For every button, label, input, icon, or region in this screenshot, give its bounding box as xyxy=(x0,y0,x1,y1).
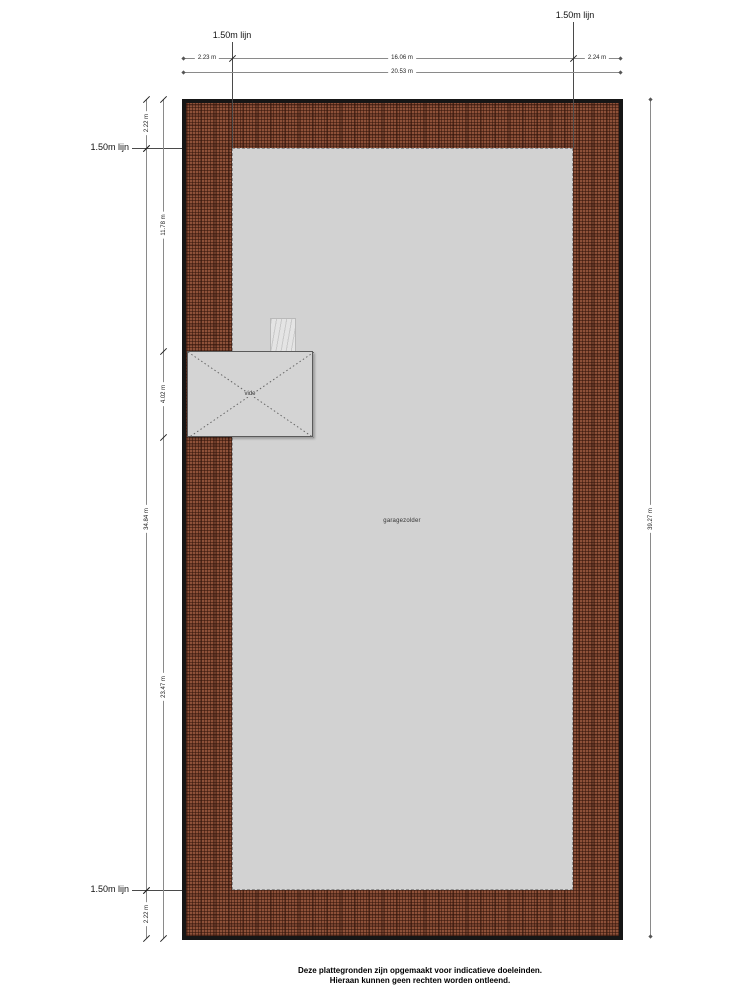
dim-tick xyxy=(160,935,167,942)
dim-left-inner-bottom: 23.47 m xyxy=(160,673,168,701)
dim-end-dot xyxy=(181,70,185,74)
height-line-label-top-right: 1.50m lijn xyxy=(556,10,595,20)
stairs-icon xyxy=(270,318,296,352)
floorplan-canvas: garagezolder vide 1.50m lijn 1.50m lijn … xyxy=(0,0,750,1000)
dim-left-outer-bottom: 2.22 m xyxy=(143,902,151,926)
room-label: garagezolder xyxy=(383,518,420,524)
dim-top-left: 2.23 m xyxy=(195,54,219,62)
dim-top-total: 20.53 m xyxy=(388,68,416,76)
height-line-top-right xyxy=(573,22,574,148)
dim-left-inner-top: 11.78 m xyxy=(160,211,168,238)
disclaimer-line2: Hieraan kunnen geen rechten worden ontle… xyxy=(135,976,705,986)
dim-end-dot xyxy=(648,934,652,938)
dim-end-dot xyxy=(181,56,185,60)
dim-top-middle: 16.06 m xyxy=(388,54,416,62)
disclaimer-text: Deze plattegronden zijn opgemaakt voor i… xyxy=(135,966,705,986)
dim-end-dot xyxy=(618,56,622,60)
height-line-left-upper xyxy=(132,148,182,149)
height-line-label-left-lower: 1.50m lijn xyxy=(85,884,129,894)
vide-void: vide xyxy=(187,351,313,437)
dim-end-dot xyxy=(648,97,652,101)
vide-label: vide xyxy=(243,391,256,397)
dim-end-dot xyxy=(618,70,622,74)
disclaimer-line1: Deze plattegronden zijn opgemaakt voor i… xyxy=(135,966,705,976)
height-line-label-top-left: 1.50m lijn xyxy=(213,30,252,40)
height-line-left-lower xyxy=(132,890,182,891)
dim-tick xyxy=(143,935,150,942)
dim-left-inner-vide: 4.02 m xyxy=(160,382,168,406)
dim-left-outer-top: 2.22 m xyxy=(143,111,151,135)
dim-right-total: 39.27 m xyxy=(647,505,655,533)
dim-top-right: 2.24 m xyxy=(585,54,609,62)
dim-left-outer-middle: 34.84 m xyxy=(143,505,151,533)
height-line-label-left-upper: 1.50m lijn xyxy=(85,142,129,152)
